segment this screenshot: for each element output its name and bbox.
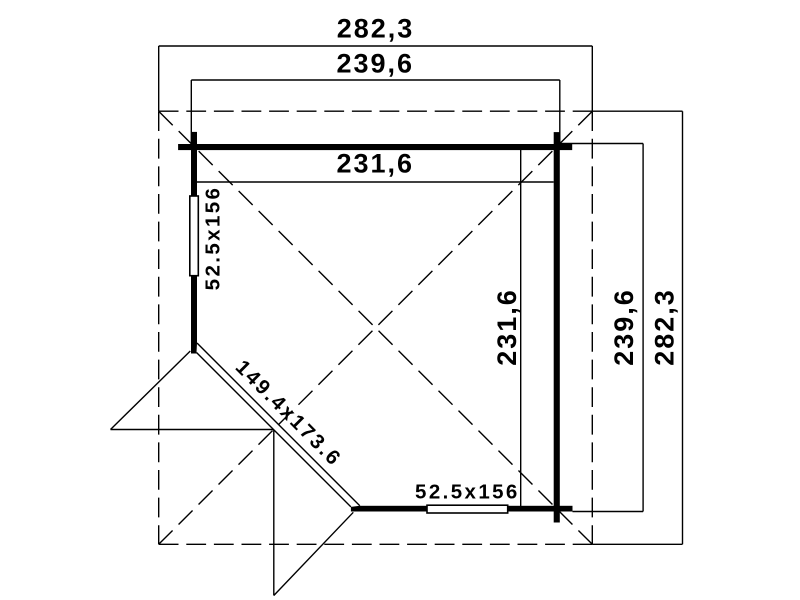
svg-text:231,6: 231,6 [492,288,522,366]
svg-text:282,3: 282,3 [650,288,680,366]
svg-text:239,6: 239,6 [337,49,415,79]
svg-text:52.5x156: 52.5x156 [201,186,224,291]
svg-text:231,6: 231,6 [337,149,415,179]
svg-text:282,3: 282,3 [337,14,415,44]
svg-text:52.5x156: 52.5x156 [415,481,520,504]
svg-text:239,6: 239,6 [609,288,639,366]
